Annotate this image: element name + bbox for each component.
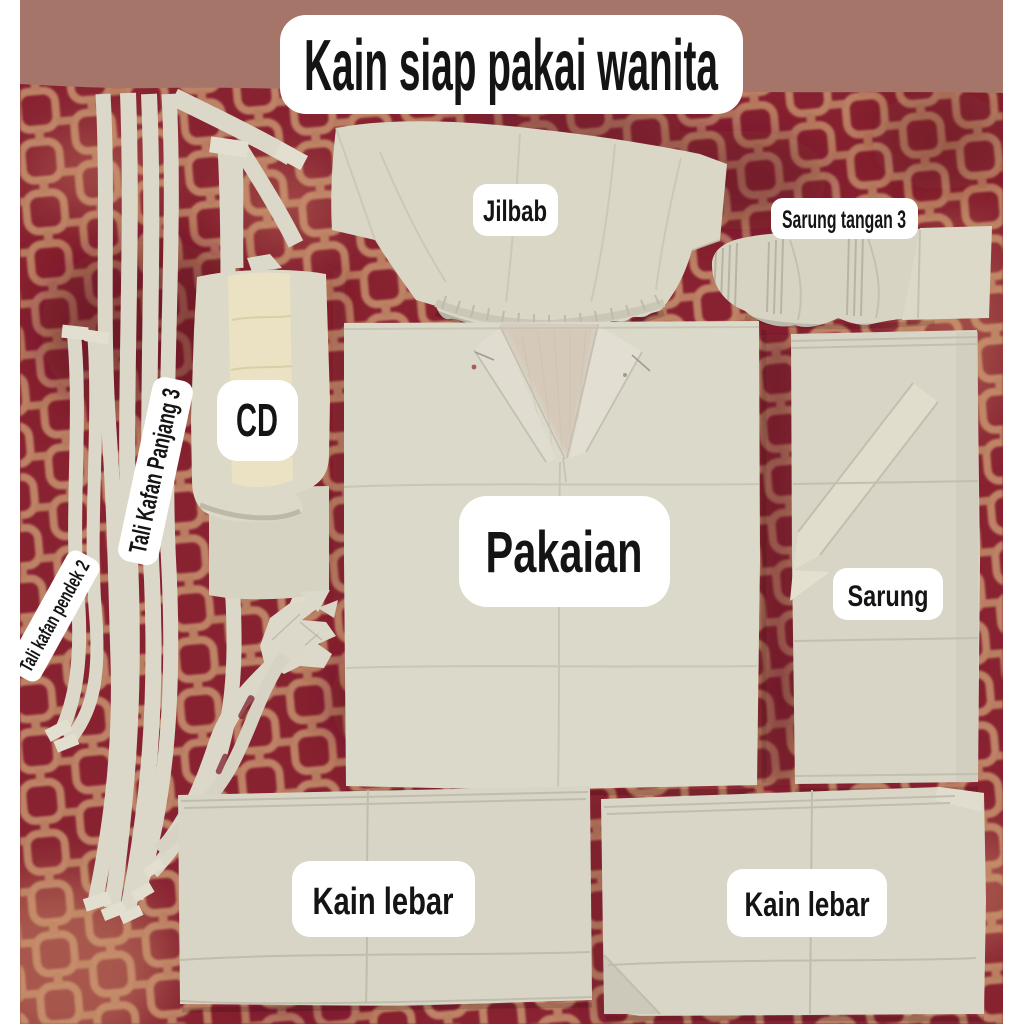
svg-text:Sarung tangan 3: Sarung tangan 3 bbox=[782, 206, 906, 234]
svg-text:Sarung: Sarung bbox=[848, 580, 929, 613]
svg-text:Pakaian: Pakaian bbox=[486, 520, 643, 585]
svg-text:Kain siap pakai wanita: Kain siap pakai wanita bbox=[304, 26, 719, 106]
svg-text:Kain lebar: Kain lebar bbox=[313, 881, 454, 923]
svg-text:Kain lebar: Kain lebar bbox=[745, 886, 870, 924]
svg-text:CD: CD bbox=[236, 394, 278, 446]
svg-text:Jilbab: Jilbab bbox=[483, 195, 547, 228]
